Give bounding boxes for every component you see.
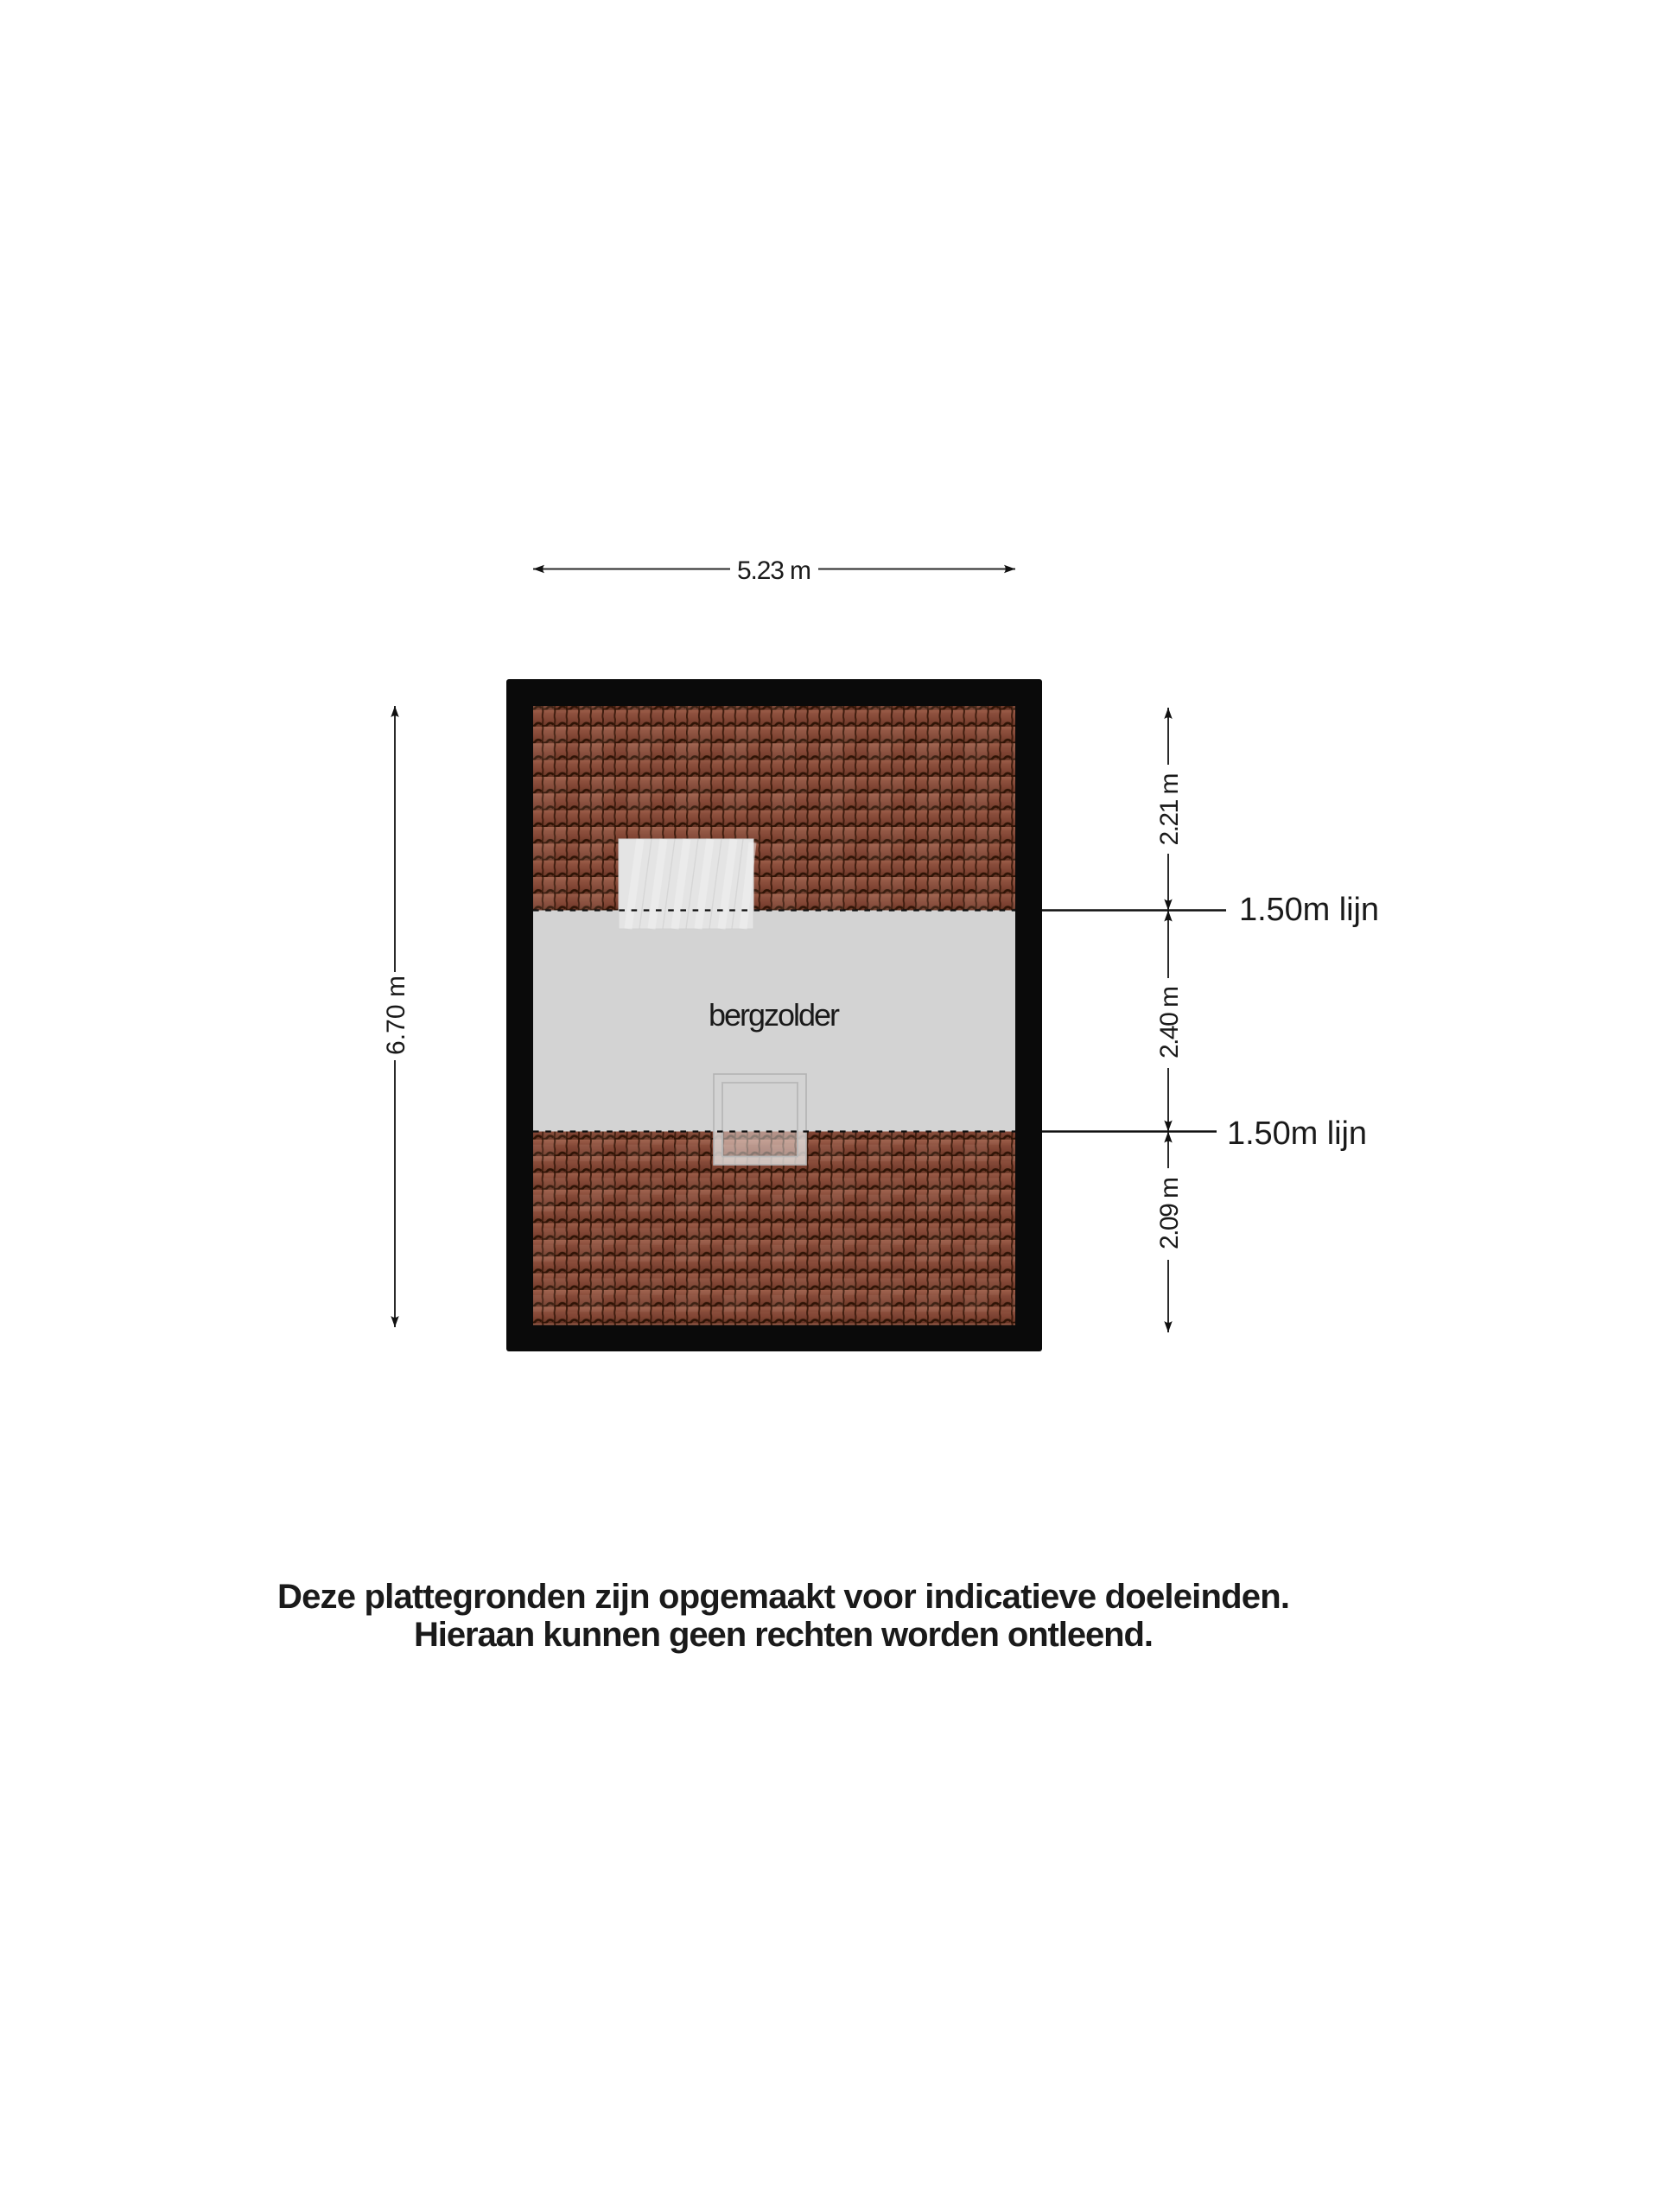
svg-text:bergzolder: bergzolder	[709, 997, 840, 1033]
svg-text:2.09 m: 2.09 m	[1155, 1177, 1184, 1249]
svg-text:Hieraan kunnen geen rechten wo: Hieraan kunnen geen rechten worden ontle…	[414, 1616, 1154, 1654]
svg-text:1.50m lijn: 1.50m lijn	[1227, 1116, 1367, 1152]
svg-text:5.23 m: 5.23 m	[737, 556, 811, 585]
svg-text:6.70 m: 6.70 m	[382, 976, 410, 1055]
svg-text:2.40 m: 2.40 m	[1155, 986, 1184, 1058]
svg-text:Deze plattegronden zijn opgema: Deze plattegronden zijn opgemaakt voor i…	[277, 1578, 1290, 1616]
svg-text:2.21 m: 2.21 m	[1155, 773, 1184, 846]
svg-text:1.50m lijn: 1.50m lijn	[1239, 892, 1379, 928]
